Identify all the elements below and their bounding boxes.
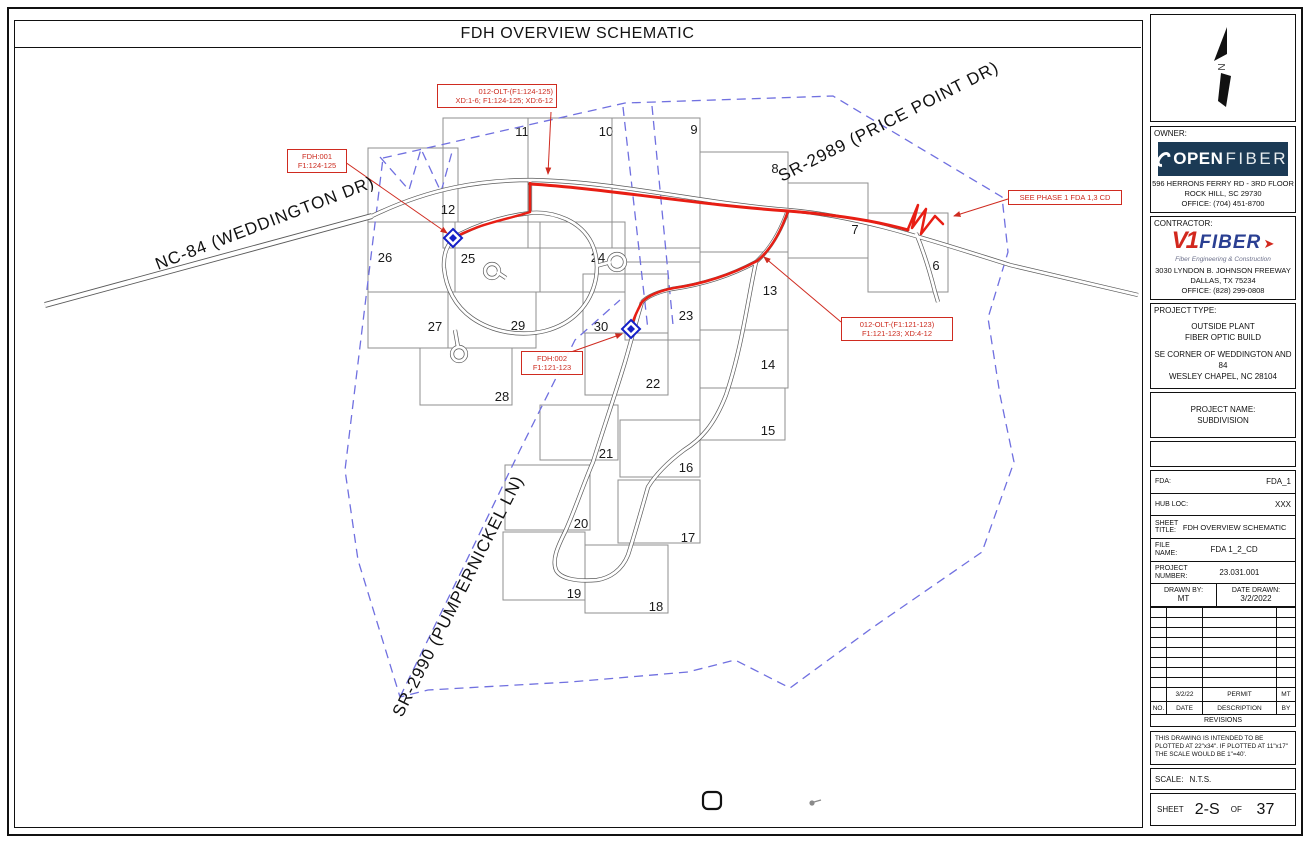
svg-text:N: N [1217,63,1228,70]
street-label-price-point: SR-2989 (PRICE POINT DR) [775,58,1002,186]
north-arrow-box: N [1150,14,1296,122]
sheet-title-row: SHEETTITLE: FDH OVERVIEW SCHEMATIC [1151,515,1295,538]
owner-address: 596 HERRONS FERRY RD - 3RD FLOOR ROCK HI… [1151,179,1295,209]
fda-value: FDA_1 [1171,477,1291,486]
revision-description: PERMIT [1203,688,1277,702]
spacer-box [1150,441,1296,467]
logo-word-fiber: FIBER [1225,149,1288,169]
callout-line: F1:124-125 [291,161,343,170]
revision-empty-row [1151,608,1295,618]
revisions-empty-rows [1151,608,1295,688]
lot-number: 26 [378,250,392,265]
revisions-header-row: NO. DATE DESCRIPTION BY [1151,702,1295,715]
lot-number: 17 [681,530,695,545]
sheet-label: SHEET [1157,805,1184,814]
callout-line: FDH:002 [525,354,579,363]
logo-word-fiber2: FIBER [1199,232,1261,253]
plot-note-box: THIS DRAWING IS INTENDED TO BE PLOTTED A… [1150,731,1296,765]
callout-line: XD:1-6; F1:124-125; XD:6-12 [441,96,553,105]
fiber-route-fdh2 [631,211,788,328]
revision-by: MT [1277,688,1295,702]
lot-number: 21 [599,446,613,461]
vifiber-logo: V1 FIBER ➤ [1151,231,1295,256]
lot-number: 29 [511,318,525,333]
revision-empty-row [1151,628,1295,638]
file-name-value: FDA 1_2_CD [1177,545,1291,554]
info-rows-box: FDA: FDA_1 HUB LOC: XXX SHEETTITLE: FDH … [1150,470,1296,607]
callout-line: 012-OLT-(F1:124-125) [441,87,553,96]
revisions-table: 3/2/22 PERMIT MT NO. DATE DESCRIPTION BY… [1150,607,1296,727]
revision-empty-row [1151,678,1295,688]
logo-arrow-icon: ➤ [1263,236,1274,251]
sheet-of-label: OF [1231,805,1242,814]
lot-number: 14 [761,357,775,372]
street-label-pumpernickel: SR-2990 (PUMPERNICKEL LN) [389,472,528,720]
openfiber-logo-icon [1154,149,1174,169]
lot-number: 10 [599,124,613,139]
contractor-box: CONTRACTOR: V1 FIBER ➤ Fiber Engineering… [1150,216,1296,300]
lot-number: 15 [761,423,775,438]
callout-olt-121: 012-OLT-(F1:121-123) F1:121-123; XD:4-12 [841,317,953,341]
scale-box: SCALE: N.T.S. [1150,768,1296,790]
revision-empty-row [1151,658,1295,668]
schematic-map: 1110987612262524132729302314282215211620… [14,20,1141,826]
project-name-box: PROJECT NAME: SUBDIVISION [1150,392,1296,438]
date-drawn-label: DATE DRAWN: [1217,587,1295,595]
vifiber-tagline: Fiber Engineering & Construction [1151,256,1295,263]
project-number-row: PROJECTNUMBER: 23.031.001 [1151,561,1295,584]
openfiber-logo: OPEN FIBER [1158,142,1288,176]
date-drawn-value: 3/2/2022 [1217,594,1295,603]
lot-number: 22 [646,376,660,391]
callout-olt-124: 012-OLT-(F1:124-125) XD:1-6; F1:124-125;… [437,84,557,108]
fiber-slack-symbol [908,205,943,234]
north-arrow-icon: N [1151,15,1293,119]
lot-number: 28 [495,389,509,404]
callout-line: 012-OLT-(F1:121-123) [845,320,949,329]
callout-line: F1:121-123 [525,363,579,372]
lot-number: 13 [763,283,777,298]
project-type-label: PROJECT TYPE: [1151,304,1295,317]
scale-value: N.T.S. [1189,775,1211,784]
lot-number: 16 [679,460,693,475]
revision-empty-row [1151,648,1295,658]
logo-word-v1: V1 [1172,227,1197,254]
project-name-value: SUBDIVISION [1151,415,1295,426]
hub-loc-value: XXX [1188,500,1291,509]
file-name-row: FILENAME: FDA 1_2_CD [1151,538,1295,561]
symbol-small-marker [809,800,821,806]
scale-label: SCALE: [1155,775,1183,784]
project-name-label: PROJECT NAME: [1151,404,1295,415]
lot-number: 18 [649,599,663,614]
sheet-number: 2-S [1184,801,1231,819]
sheet-title-value: FDH OVERVIEW SCHEMATIC [1178,523,1291,532]
project-type-value: OUTSIDE PLANT FIBER OPTIC BUILD [1151,321,1295,343]
revision-empty-row [1151,668,1295,678]
revisions-banner: REVISIONS [1151,715,1295,727]
lot-number: 6 [932,258,939,273]
hub-loc-row: HUB LOC: XXX [1151,493,1295,516]
drawn-by-value: MT [1151,594,1216,603]
project-type-box: PROJECT TYPE: OUTSIDE PLANT FIBER OPTIC … [1150,303,1296,389]
logo-word-open: OPEN [1173,149,1223,169]
project-number-value: 23.031.001 [1188,568,1291,577]
drawing-sheet: FDH OVERVIEW SCHEMATIC 11109876122625241… [0,0,1309,842]
callout-line: SEE PHASE 1 FDA 1,3 CD [1012,193,1118,202]
contractor-address: 3030 LYNDON B. JOHNSON FREEWAY DALLAS, T… [1151,266,1295,296]
sheet-number-box: SHEET 2-S OF 37 [1150,793,1296,826]
owner-label: OWNER: [1151,127,1295,140]
lot-number: 20 [574,516,588,531]
drawn-by-row: DRAWN BY: MT DATE DRAWN: 3/2/2022 [1151,583,1295,606]
callout-fdh-002: FDH:002 F1:121-123 [521,351,583,375]
lot-number: 23 [679,308,693,323]
owner-box: OWNER: OPEN FIBER 596 HERRONS FERRY RD -… [1150,126,1296,213]
callout-line: FDH:001 [291,152,343,161]
fda-row: FDA: FDA_1 [1151,471,1295,493]
lot-number: 7 [851,222,858,237]
callout-see-phase: SEE PHASE 1 FDA 1,3 CD [1008,190,1122,205]
revision-date: 3/2/22 [1167,688,1203,702]
lot-number: 9 [690,122,697,137]
lot-number: 19 [567,586,581,601]
plot-note: THIS DRAWING IS INTENDED TO BE PLOTTED A… [1151,732,1295,762]
lot-number: 25 [461,251,475,266]
lot-number: 12 [441,202,455,217]
callout-fdh-001: FDH:001 F1:124-125 [287,149,347,173]
drawn-by-label: DRAWN BY: [1151,587,1216,595]
sheet-total: 37 [1242,801,1289,819]
symbol-rounded-square [703,792,721,809]
lot-number: 27 [428,319,442,334]
revision-row-permit: 3/2/22 PERMIT MT [1151,688,1295,702]
revision-empty-row [1151,618,1295,628]
revision-empty-row [1151,638,1295,648]
callout-line: F1:121-123; XD:4-12 [845,329,949,338]
project-location: SE CORNER OF WEDDINGTON AND 84 WESLEY CH… [1151,349,1295,382]
